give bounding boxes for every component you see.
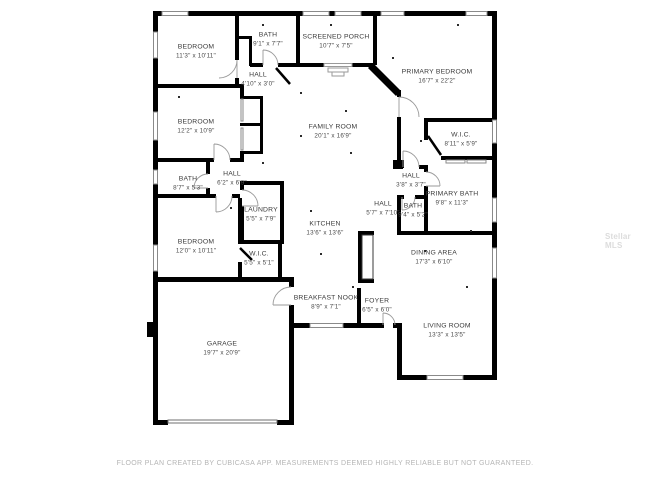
room-name: FAMILY ROOM [309,124,358,133]
room-dims: 9'1" x 7'7" [253,40,283,48]
room-label-hall-mid-left: HALL6'2" x 6'9" [217,171,247,188]
room-name: BATH [253,32,283,41]
room-dims: 6'5" x 6'0" [362,306,392,314]
room-name: SCREENED PORCH [302,34,369,43]
floorplan-drawing [0,0,650,488]
room-label-wic-primary: W.I.C.8'11" x 5'9" [445,132,478,149]
room-dims: 9'8" x 11'3" [426,199,479,207]
room-label-bedroom-bottom-left: BEDROOM12'0" x 10'11" [176,239,216,256]
room-dims: 8'9" x 7'1" [294,303,359,311]
room-dims: 5'5" x 5'1" [244,259,274,267]
room-name: PRIMARY BATH [426,191,479,200]
room-name: BATH [398,203,428,212]
room-name: W.I.C. [244,251,274,260]
room-dims: 12'2" x 10'9" [177,127,214,135]
room-dims: 12'0" x 10'11" [176,247,216,255]
room-dims: 10'7" x 7'5" [302,42,369,50]
porch-steps [324,64,352,77]
garage-door [168,420,277,423]
room-label-bedroom-top-left: BEDROOM11'3" x 10'11" [176,44,216,61]
room-label-bath-top: BATH9'1" x 7'7" [253,32,283,49]
room-dims: 6'2" x 6'9" [217,179,247,187]
room-dims: 17'3" x 6'10" [411,258,457,266]
room-label-bedroom-mid-left: BEDROOM12'2" x 10'9" [177,119,214,136]
room-dims: 5'7" x 7'10" [366,209,399,217]
room-dims: 8'11" x 5'9" [445,140,478,148]
pantry-cabinets [362,235,373,279]
room-label-wic-bedroom: W.I.C.5'5" x 5'1" [244,251,274,268]
room-label-garage: GARAGE19'7" x 20'9" [203,341,240,358]
room-name: PRIMARY BEDROOM [402,69,473,78]
room-name: HALL [396,173,426,182]
room-name: BATH [173,176,203,185]
room-name: HALL [366,201,399,210]
room-dims: 3'8" x 3'7" [396,181,426,189]
watermark: Stellar MLS [605,232,635,250]
room-dims: 13'6" x 13'6" [306,229,343,237]
room-name: DINING AREA [411,250,457,259]
room-dims: 16'7" x 22'2" [402,77,473,85]
room-label-screened-porch: SCREENED PORCH10'7" x 7'5" [302,34,369,51]
room-name: LAUNDRY [244,207,278,216]
room-dims: 9'4" x 5'2" [398,211,428,219]
room-name: HALL [241,72,274,81]
room-name: GARAGE [203,341,240,350]
floorplan-page: BEDROOM11'3" x 10'11" BATH9'1" x 7'7" SC… [0,0,650,488]
room-dims: 13'3" x 13'5" [423,331,471,339]
room-label-laundry: LAUNDRY5'5" x 7'9" [244,207,278,224]
room-dims: 5'5" x 7'9" [244,215,278,223]
room-name: HALL [217,171,247,180]
room-name: BEDROOM [177,119,214,128]
room-name: BREAKFAST NOOK [294,295,359,304]
footer-disclaimer: FLOOR PLAN CREATED BY CUBICASA APP. MEAS… [0,460,650,467]
room-label-primary-bedroom: PRIMARY BEDROOM16'7" x 22'2" [402,69,473,86]
room-label-primary-bath: PRIMARY BATH9'8" x 11'3" [426,191,479,208]
room-name: KITCHEN [306,221,343,230]
room-label-dining-area: DINING AREA17'3" x 6'10" [411,250,457,267]
room-label-hall-kitchen: HALL5'7" x 7'10" [366,201,399,218]
room-label-hall-north: HALL4'10" x 3'0" [241,72,274,89]
room-label-bath-mid-left: BATH8'7" x 5'3" [173,176,203,193]
room-label-living-room: LIVING ROOM13'3" x 13'5" [423,323,471,340]
room-name: BEDROOM [176,44,216,53]
room-label-bath-hall: BATH9'4" x 5'2" [398,203,428,220]
room-label-family-room: FAMILY ROOM20'1" x 16'9" [309,124,358,141]
room-dims: 20'1" x 16'9" [309,132,358,140]
room-name: FOYER [362,298,392,307]
room-label-breakfast-nook: BREAKFAST NOOK8'9" x 7'1" [294,295,359,312]
room-label-foyer: FOYER6'5" x 6'0" [362,298,392,315]
room-label-hall-primary: HALL3'8" x 3'7" [396,173,426,190]
room-name: W.I.C. [445,132,478,141]
room-name: BEDROOM [176,239,216,248]
room-label-kitchen: KITCHEN13'6" x 13'6" [306,221,343,238]
room-dims: 8'7" x 5'3" [173,184,203,192]
room-dims: 19'7" x 20'9" [203,349,240,357]
room-dims: 4'10" x 3'0" [241,80,274,88]
room-name: LIVING ROOM [423,323,471,332]
room-dims: 11'3" x 10'11" [176,52,216,60]
